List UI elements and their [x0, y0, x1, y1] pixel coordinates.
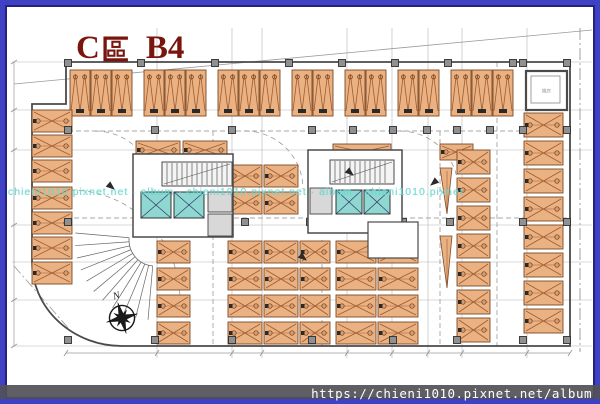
parking-stall — [300, 295, 330, 317]
wheel-stop — [379, 277, 383, 281]
wheel-stop — [458, 272, 462, 276]
structural-column — [65, 219, 72, 226]
parking-stall — [336, 322, 376, 344]
wheel-stop — [184, 148, 188, 152]
wheel-stop — [337, 304, 341, 308]
structural-column — [350, 127, 357, 134]
wheel-stop — [301, 277, 305, 281]
wheel-stop — [301, 331, 305, 335]
wheel-stop — [337, 331, 341, 335]
structural-column — [392, 60, 399, 67]
wheel-stop — [298, 109, 306, 113]
parking-stall — [345, 70, 365, 116]
parking-stall — [112, 70, 132, 116]
parking-stall — [457, 150, 490, 174]
parking-stall — [292, 70, 312, 116]
structural-column — [65, 127, 72, 134]
structural-column — [65, 60, 72, 67]
wheel-stop — [265, 331, 269, 335]
parking-stall — [186, 70, 206, 116]
structural-column — [424, 127, 431, 134]
page-title: C B4 — [76, 32, 184, 65]
parking-stall — [366, 70, 386, 116]
parking-stall — [228, 295, 262, 317]
parking-stall — [524, 141, 563, 165]
structural-column — [564, 60, 571, 67]
wheel-stop — [337, 250, 341, 254]
parking-stall — [524, 253, 563, 277]
wheel-stop — [158, 304, 162, 308]
wheel-stop — [301, 304, 305, 308]
parking-stall — [32, 237, 72, 259]
structural-column — [242, 219, 249, 226]
parking-stall — [472, 70, 492, 116]
structural-column — [309, 127, 316, 134]
parking-stall — [419, 70, 439, 116]
parking-stall — [157, 241, 190, 263]
machine-room: 機房 — [526, 71, 567, 110]
fan-stair-tread — [148, 266, 153, 320]
wheel-stop — [224, 109, 232, 113]
wheel-stop — [458, 160, 462, 164]
wheel-stop — [229, 304, 233, 308]
wheel-stop — [379, 304, 383, 308]
wheel-stop — [33, 246, 37, 250]
parking-stall — [264, 268, 298, 290]
plan-background: 機房N C B4 chieni1010.pixnet.net · album ·… — [0, 0, 600, 404]
parking-stall — [264, 241, 298, 263]
structural-column — [309, 337, 316, 344]
structural-column — [564, 127, 571, 134]
parking-stall — [157, 295, 190, 317]
wheel-stop — [150, 109, 158, 113]
wheel-stop — [97, 109, 105, 113]
parking-stall — [524, 113, 563, 137]
parking-stall — [336, 295, 376, 317]
parking-stall — [165, 70, 185, 116]
wheel-stop — [265, 277, 269, 281]
parking-stall — [264, 322, 298, 344]
wheel-stop — [265, 174, 269, 178]
qu-district-glyph — [102, 34, 130, 64]
structural-column — [520, 60, 527, 67]
structural-column — [286, 60, 293, 67]
wheel-stop — [33, 144, 37, 148]
fan-stair-inner-arc — [129, 238, 153, 266]
parking-stall — [457, 290, 490, 314]
structural-column — [390, 127, 397, 134]
machine-room-label: 機房 — [542, 88, 551, 95]
wheel-stop — [76, 109, 84, 113]
url-text: https://chieni1010.pixnet.net/album — [311, 387, 600, 401]
wheel-stop — [525, 263, 529, 267]
parking-stall — [239, 70, 259, 116]
parking-stall — [524, 197, 563, 221]
parking-stall — [378, 295, 418, 317]
wheel-stop — [137, 148, 141, 152]
wheel-stop — [404, 109, 412, 113]
fan-stair-tread — [75, 233, 129, 238]
structural-column — [510, 60, 517, 67]
structural-column — [564, 219, 571, 226]
structural-column — [445, 60, 452, 67]
parking-stall — [260, 70, 280, 116]
wheel-stop — [525, 179, 529, 183]
structural-column — [65, 337, 72, 344]
wheel-stop — [33, 221, 37, 225]
parking-stall — [228, 241, 262, 263]
wheel-stop — [525, 151, 529, 155]
wheel-stop — [319, 109, 327, 113]
wheel-stop — [525, 207, 529, 211]
compass-rose: N — [98, 287, 142, 339]
parking-stall — [378, 322, 418, 344]
wheel-stop — [171, 109, 179, 113]
parking-stall — [493, 70, 513, 116]
wheel-stop — [266, 109, 274, 113]
parking-stall — [457, 318, 490, 342]
title-suffix: B4 — [146, 32, 185, 65]
wheel-stop — [458, 328, 462, 332]
wheel-stop — [33, 271, 37, 275]
parking-stall — [264, 295, 298, 317]
parking-stall — [32, 262, 72, 284]
fan-stair-tread — [77, 246, 130, 258]
parking-stall — [524, 225, 563, 249]
parking-stall — [524, 281, 563, 305]
parking-stall — [457, 234, 490, 258]
parking-stall — [228, 268, 262, 290]
wheel-stop — [265, 201, 269, 205]
structural-column — [152, 337, 159, 344]
parking-stall — [32, 160, 72, 182]
wheel-stop — [457, 109, 465, 113]
wheel-stop — [351, 109, 359, 113]
structural-column — [487, 127, 494, 134]
parking-stall — [91, 70, 111, 116]
parking-stall — [398, 70, 418, 116]
fan-stair-tread — [75, 242, 129, 246]
fan-stair-tread — [136, 265, 149, 317]
wheel-stop — [337, 277, 341, 281]
wheel-stop — [379, 331, 383, 335]
parking-stall — [457, 262, 490, 286]
parking-stall — [157, 268, 190, 290]
wheel-stop — [33, 119, 37, 123]
wheel-stop — [265, 304, 269, 308]
parking-stall — [300, 268, 330, 290]
wheel-stop — [265, 250, 269, 254]
wheel-stop — [245, 109, 253, 113]
wheel-stop — [525, 291, 529, 295]
structural-column — [152, 127, 159, 134]
structural-column — [454, 127, 461, 134]
fan-stair — [75, 233, 153, 320]
parking-stall — [313, 70, 333, 116]
wheel-stop — [499, 109, 507, 113]
structural-column — [212, 60, 219, 67]
url-bar: https://chieni1010.pixnet.net/album — [0, 385, 600, 399]
structural-column — [447, 219, 454, 226]
parking-stall — [157, 322, 190, 344]
watermark-band: chieni1010.pixnet.net · album · chieni10… — [8, 186, 470, 199]
wheel-stop — [525, 235, 529, 239]
structural-column — [564, 337, 571, 344]
wheel-stop — [158, 277, 162, 281]
wheel-stop — [372, 109, 380, 113]
wheel-stop — [525, 319, 529, 323]
parking-stall — [264, 165, 298, 187]
parking-stall — [524, 169, 563, 193]
wheel-stop — [458, 244, 462, 248]
wheel-stop — [118, 109, 126, 113]
structural-column — [520, 127, 527, 134]
parking-stall — [70, 70, 90, 116]
wheel-stop — [229, 277, 233, 281]
parking-stall — [336, 268, 376, 290]
parking-stall — [144, 70, 164, 116]
wheel-stop — [458, 300, 462, 304]
parking-stall — [451, 70, 471, 116]
parking-stall — [457, 206, 490, 230]
structural-column — [229, 337, 236, 344]
wheel-stop — [192, 109, 200, 113]
wheel-stop — [458, 216, 462, 220]
service-shaft — [208, 214, 232, 236]
parking-stall — [524, 309, 563, 333]
parking-stall — [32, 135, 72, 157]
parking-stall — [378, 268, 418, 290]
structural-column — [520, 219, 527, 226]
lobby-room — [368, 222, 418, 258]
parking-stall — [218, 70, 238, 116]
structural-column — [339, 60, 346, 67]
structural-column — [390, 337, 397, 344]
wheel-stop — [478, 109, 486, 113]
wheel-stop — [229, 331, 233, 335]
wheel-stop — [425, 109, 433, 113]
wheel-stop — [158, 331, 162, 335]
wheel-stop — [158, 250, 162, 254]
wheel-stop — [229, 250, 233, 254]
wheel-stop — [33, 169, 37, 173]
structural-column — [520, 337, 527, 344]
title-prefix: C — [76, 32, 100, 65]
fan-stair-tread — [86, 253, 132, 281]
structural-column — [229, 127, 236, 134]
compass-north-label: N — [111, 290, 123, 303]
structural-column — [454, 337, 461, 344]
wheel-stop — [441, 150, 445, 154]
